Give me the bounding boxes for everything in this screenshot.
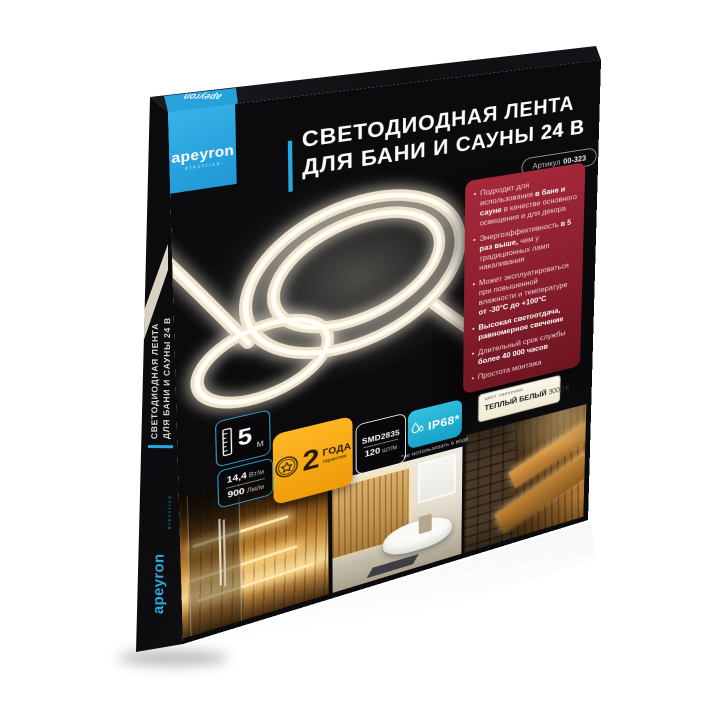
title-accent-bar — [288, 141, 293, 193]
warranty-value: 2 — [302, 445, 319, 477]
density-row: 120 шт/м — [365, 442, 397, 460]
density-value: 120 — [365, 446, 380, 460]
side-title: СВЕТОДИОДНАЯ ЛЕНТА ДЛЯ БАНИ И САУНЫ 24 В — [148, 224, 175, 448]
product-voltage: 24 В — [541, 115, 585, 144]
features-panel: Подходит для использования в бане и саун… — [463, 162, 585, 394]
length-unit: м — [256, 438, 263, 450]
packshot-scene: apeyron СВЕТОДИОДНАЯ ЛЕНТА ДЛЯ БАНИ И СА… — [0, 0, 720, 720]
lumens-unit: Лм/м — [247, 483, 264, 494]
medal-star-icon — [274, 453, 299, 481]
ruler-icon — [222, 426, 233, 457]
ip-rating-value: IP68* — [428, 411, 460, 432]
brand-logo-box: apeyron electrics — [168, 104, 237, 194]
brand-logo-mirrored: apeyron — [169, 92, 236, 103]
lumens-value: 900 — [227, 486, 244, 501]
features-list: Подходит для использования в бане и саун… — [471, 172, 577, 383]
water-drops-icon — [410, 419, 425, 437]
length-value: 5 — [237, 425, 252, 451]
side-brand-name: apeyron — [150, 554, 168, 615]
box-shadow — [118, 650, 228, 666]
density-unit: шт/м — [382, 444, 397, 454]
side-brand-logo: apeyron electrics — [151, 494, 173, 614]
side-brand-tagline: electrics — [167, 494, 173, 614]
